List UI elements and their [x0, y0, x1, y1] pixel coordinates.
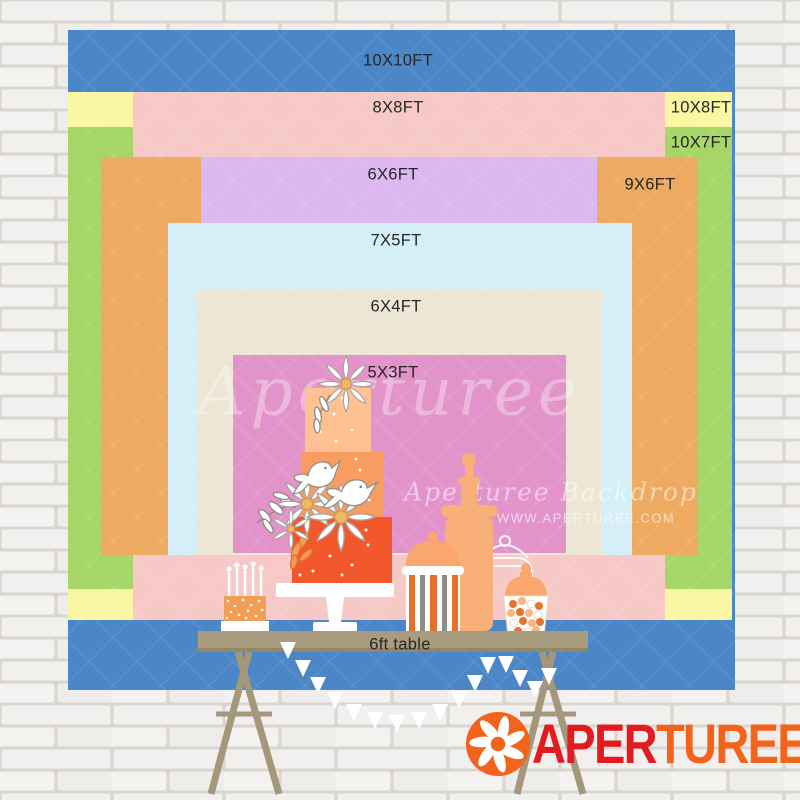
- candles: [229, 567, 261, 597]
- size-label-6x4ft: 6X4FT: [370, 298, 421, 317]
- small-candy-jar-icon: [504, 563, 548, 636]
- logo-text-red: APER: [532, 712, 656, 775]
- size-label-10x7ft: 10X7FT: [671, 134, 732, 153]
- brand-logo-text: APERTUREE: [532, 711, 800, 777]
- backdrop-size-chart: Aperturee Aperturee Backdrop WWW.APERTUR…: [0, 0, 800, 800]
- size-label-8x8ft: 8X8FT: [372, 99, 423, 118]
- brand-logo: APERTUREE: [464, 710, 800, 778]
- size-label-7x5ft: 7X5FT: [370, 232, 421, 251]
- mini-cake-icon: [221, 561, 269, 638]
- size-label-5x3ft: 5X3FT: [367, 364, 418, 383]
- size-label-10x8ft: 10X8FT: [671, 99, 732, 118]
- size-label-9x6ft: 9X6FT: [624, 176, 675, 195]
- table-legs-left: [211, 652, 279, 794]
- size-label-6x6ft: 6X6FT: [367, 166, 418, 185]
- aperture-icon: [464, 710, 532, 778]
- size-label-10x10ft: 10X10FT: [363, 52, 433, 71]
- logo-text-orange: TUREE: [656, 712, 800, 775]
- table-size-label: 6ft table: [369, 636, 430, 655]
- dessert-table-illustration: [0, 0, 800, 800]
